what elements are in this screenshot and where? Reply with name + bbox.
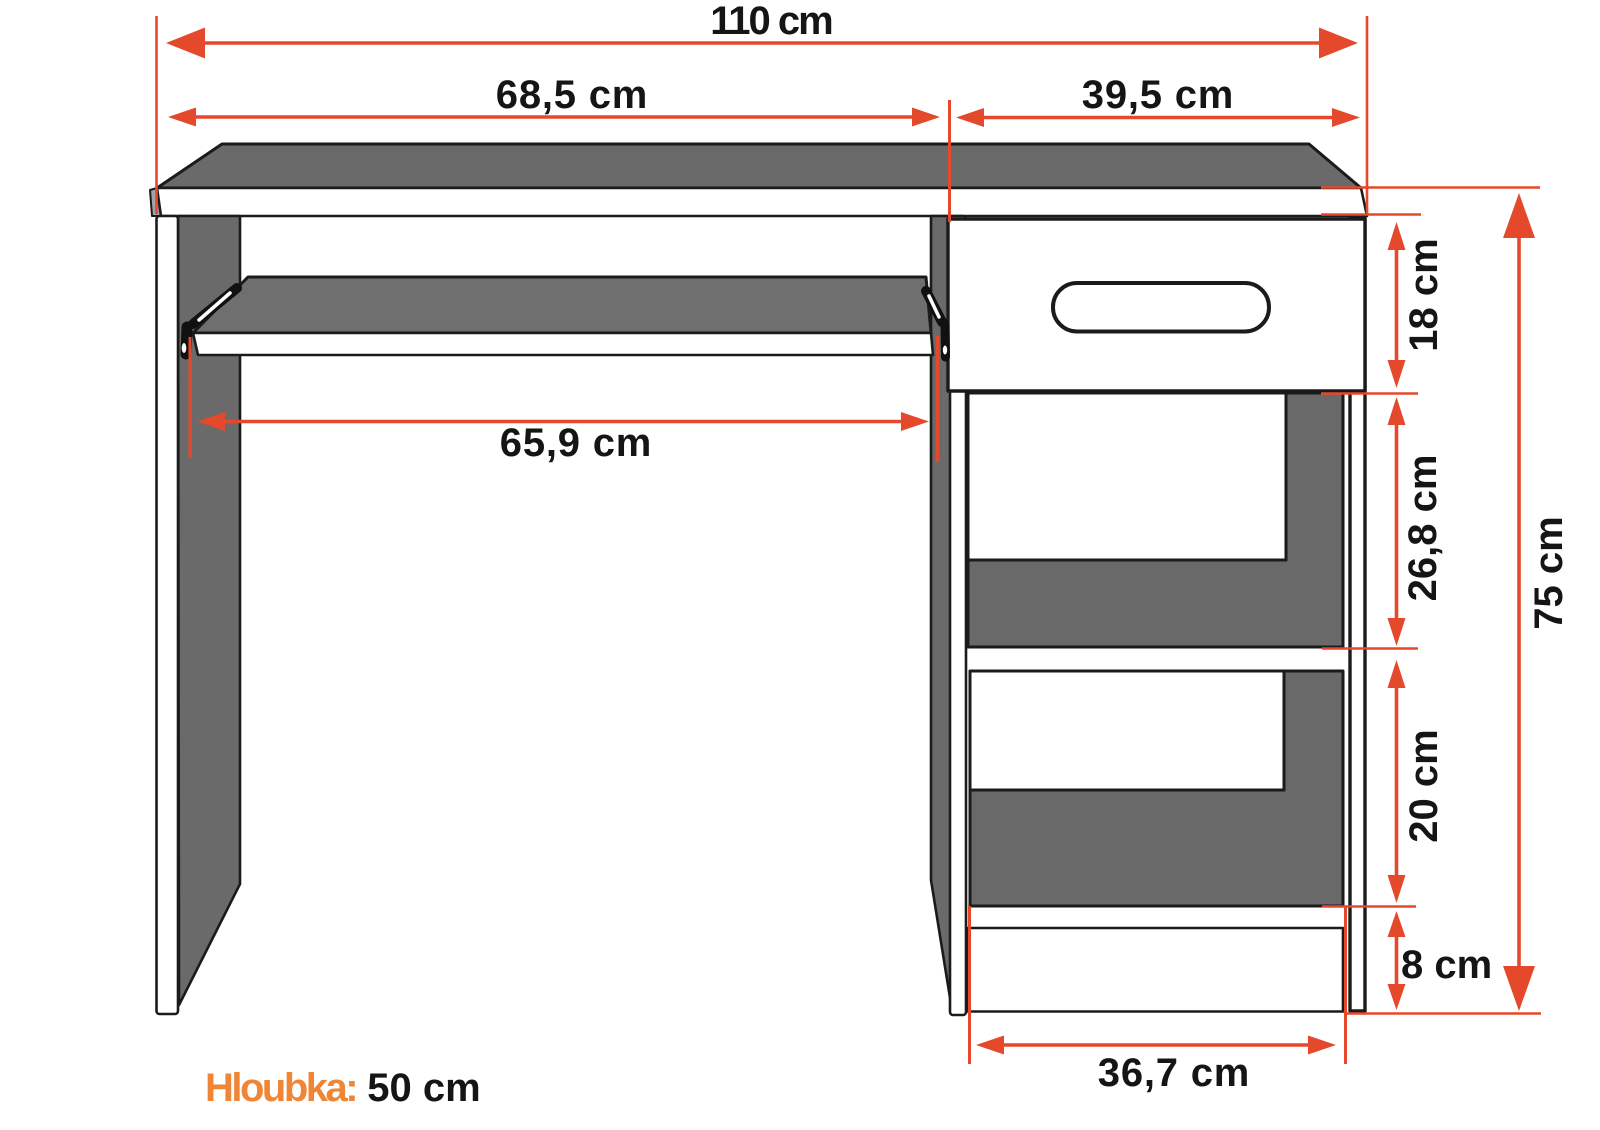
svg-text:20 cm: 20 cm <box>1402 729 1446 842</box>
svg-text:39,5 cm: 39,5 cm <box>1082 73 1234 117</box>
svg-text:26,8 cm: 26,8 cm <box>1401 455 1445 602</box>
svg-text:18 cm: 18 cm <box>1402 238 1446 351</box>
svg-text:36,7 cm: 36,7 cm <box>1098 1051 1250 1095</box>
svg-text:Hloubka: 50 cm: Hloubka: 50 cm <box>205 1066 481 1110</box>
svg-text:110 cm: 110 cm <box>710 0 832 43</box>
svg-text:75 cm: 75 cm <box>1527 516 1571 629</box>
svg-text:8 cm: 8 cm <box>1401 943 1492 987</box>
svg-text:65,9 cm: 65,9 cm <box>500 421 652 465</box>
svg-text:68,5 cm: 68,5 cm <box>496 73 648 117</box>
